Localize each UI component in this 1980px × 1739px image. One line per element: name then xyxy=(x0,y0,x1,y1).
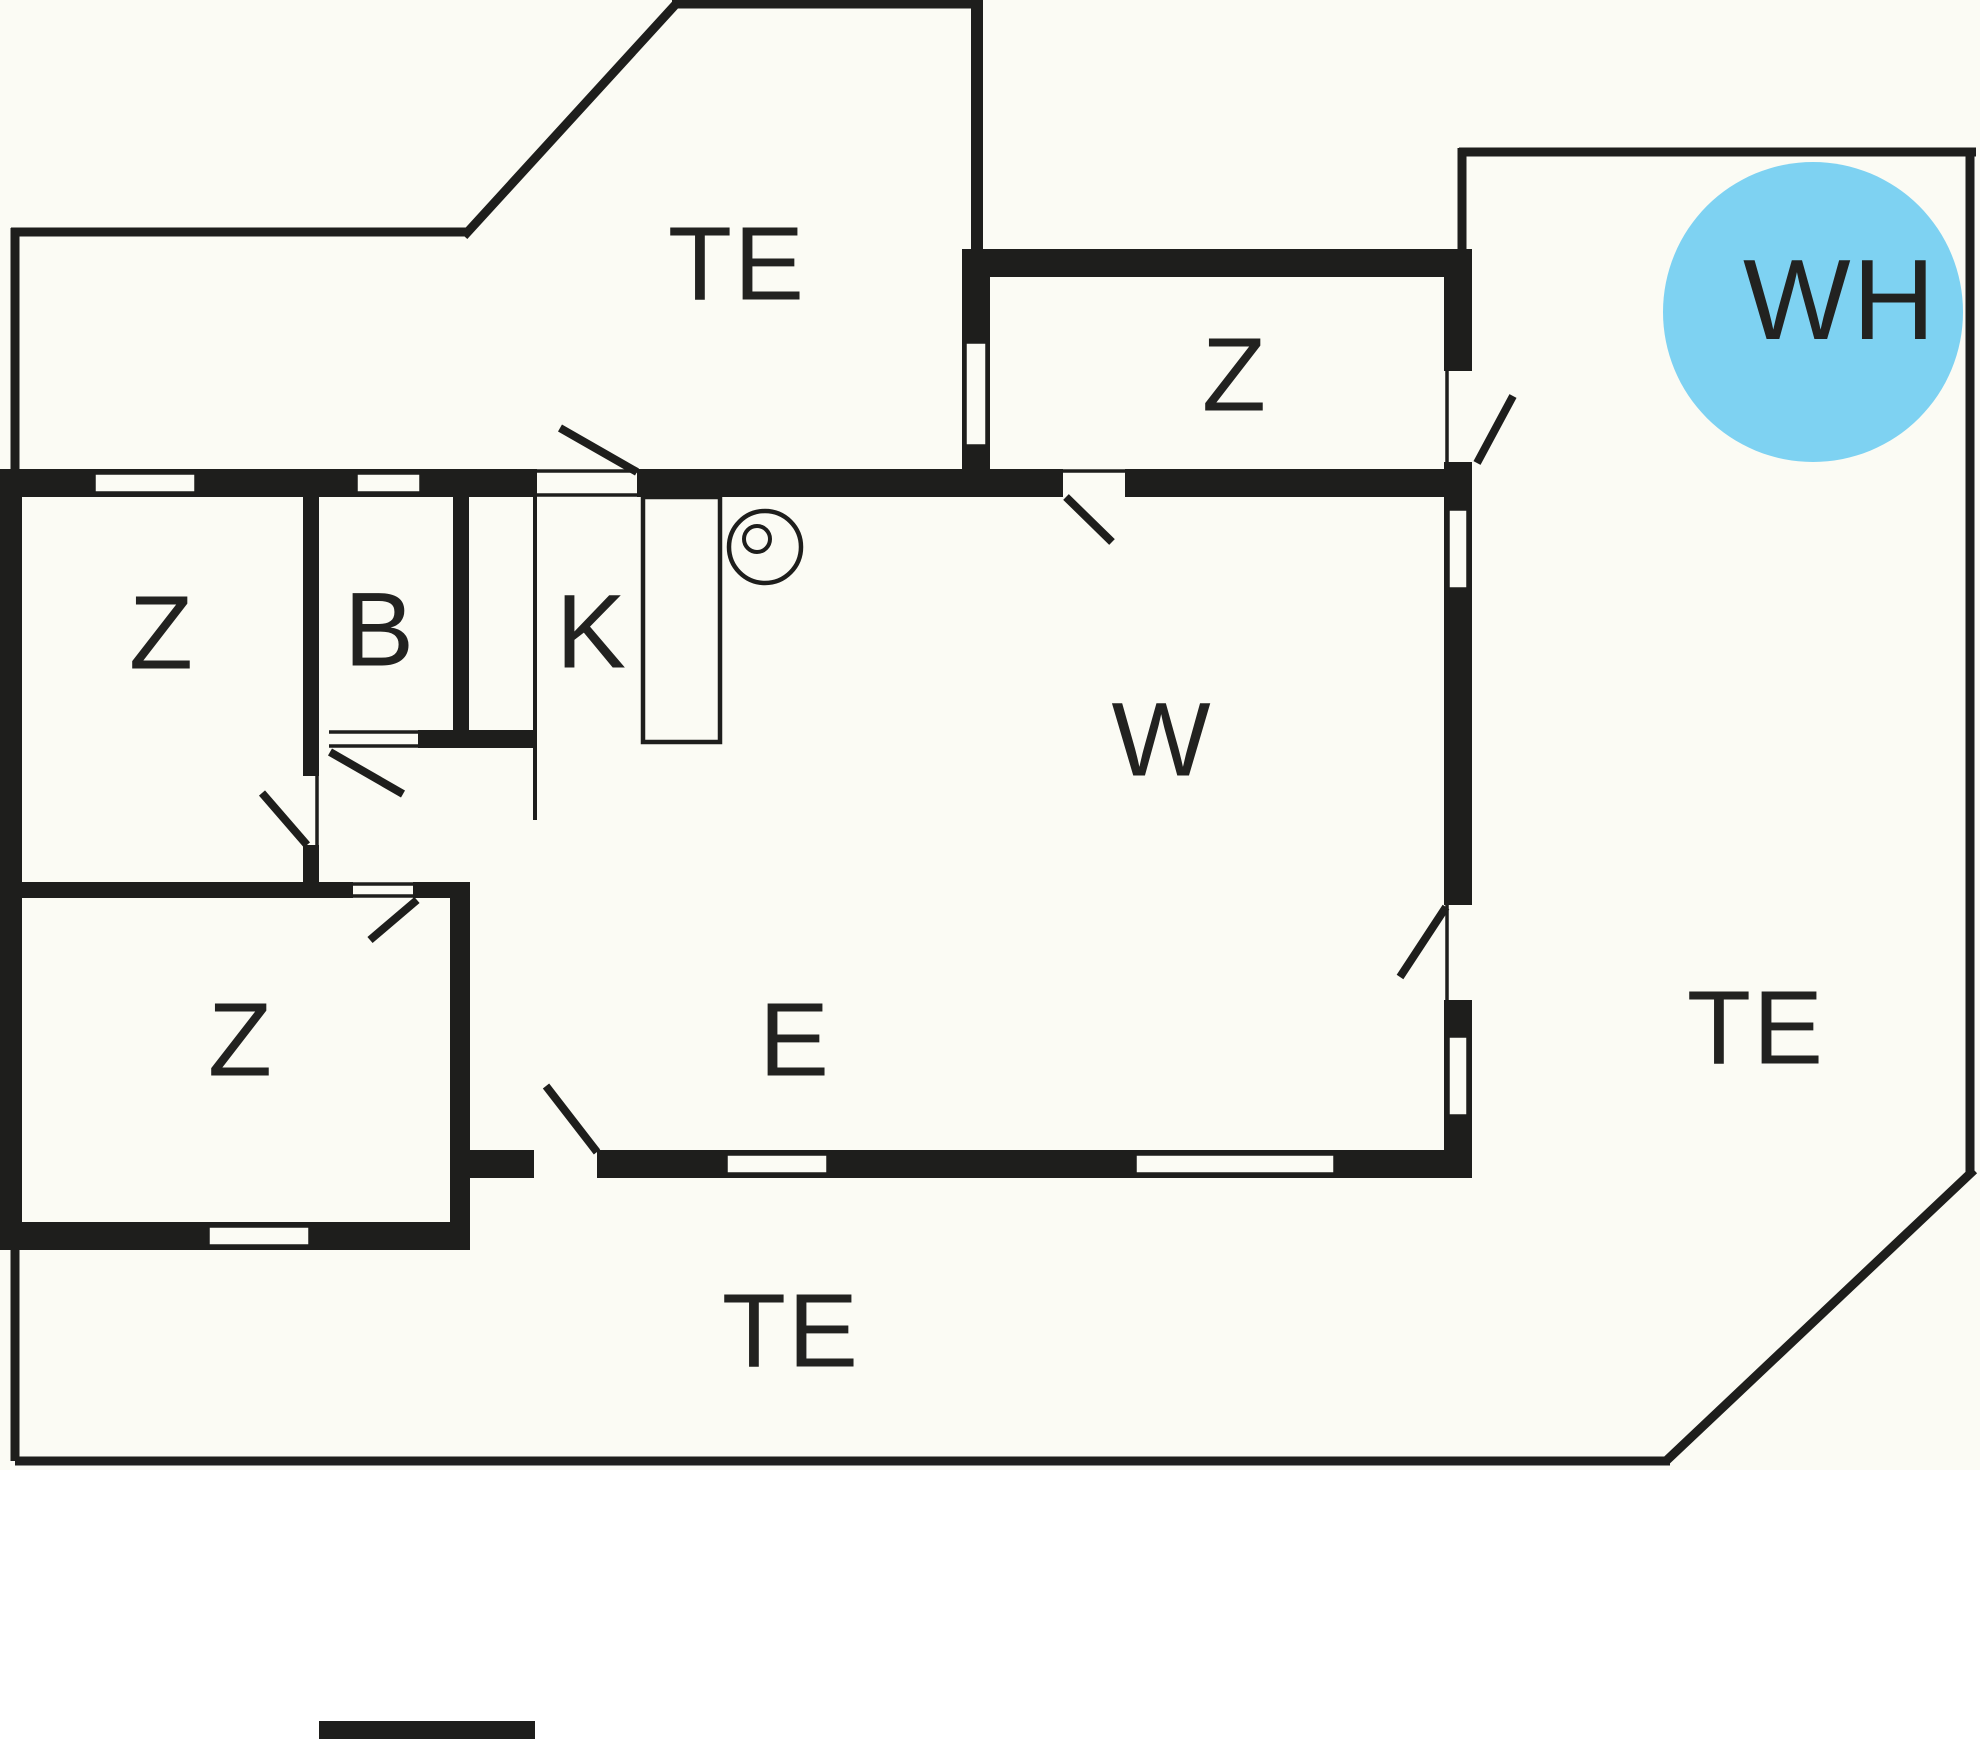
label-bedroom-left: Z xyxy=(129,581,195,686)
wall-b-k-divider xyxy=(453,497,469,748)
label-terrace-bottom: TE xyxy=(722,1279,860,1384)
window-zbottom xyxy=(208,1226,310,1246)
door-gap-dining-terrace xyxy=(534,1148,597,1180)
window-right-upper xyxy=(1448,509,1468,589)
label-whirlpool: WH xyxy=(1743,244,1937,358)
label-bathroom: B xyxy=(344,578,416,683)
wall-left xyxy=(0,469,22,1250)
label-kitchen: K xyxy=(556,580,628,685)
window-top-2 xyxy=(356,473,421,493)
label-bedroom-bottomleft: Z xyxy=(208,988,274,1093)
wall-top-right-section xyxy=(983,469,1472,497)
window-bottom-2 xyxy=(1135,1154,1335,1174)
kitchen-counter xyxy=(643,497,720,742)
window-right-lower xyxy=(1448,1036,1468,1116)
wall-terrace-top-bar xyxy=(971,0,983,249)
label-terrace-right: TE xyxy=(1687,976,1825,1081)
label-living-room: W xyxy=(1111,688,1212,793)
window-top-1 xyxy=(94,473,196,493)
label-terrace-top: TE xyxy=(668,212,806,317)
window-zroom-left xyxy=(965,342,987,446)
wall-z-b-divider xyxy=(303,497,319,776)
wall-zroom-top xyxy=(962,249,1445,277)
legend-scale-bar xyxy=(319,1721,535,1739)
wall-z-b-divider-stub xyxy=(303,845,319,882)
label-bedroom-topright: Z xyxy=(1202,323,1268,428)
floorplan-svg xyxy=(0,0,1980,1739)
floorplan-page: TE Z WH Z B K W Z E TE TE xyxy=(0,0,1980,1739)
label-dining-area: E xyxy=(759,988,831,1093)
wall-step-vertical xyxy=(450,882,470,1250)
wall-bath-bottom xyxy=(418,730,535,748)
window-bottom-1 xyxy=(726,1154,828,1174)
